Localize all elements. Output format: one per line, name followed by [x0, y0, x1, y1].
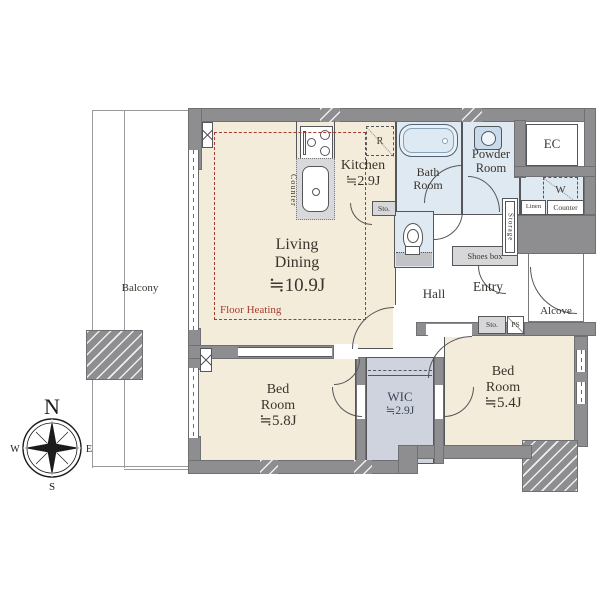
- wall-hatch-top1: [320, 108, 340, 122]
- kitchen-area: ≒2.9J: [330, 174, 396, 190]
- wic-hanger-dashed: [368, 370, 432, 371]
- kitchen-counter-label: Counter: [284, 160, 297, 220]
- wall-bottom-a: [188, 460, 416, 474]
- damper-box-left-mid: [200, 348, 212, 372]
- wic-hanger-pipe: [368, 375, 432, 376]
- ps-label: PS: [511, 321, 519, 329]
- bath-label: Bath Room: [396, 166, 460, 196]
- bed1-line2: Room: [222, 398, 334, 414]
- window-living-balcony: [188, 150, 199, 330]
- wic-name: WIC: [366, 390, 434, 405]
- storage-box-entry: Sto.: [478, 316, 506, 334]
- bed2-line2: Room: [447, 380, 559, 396]
- storage-label: Storage: [507, 213, 514, 241]
- toilet-seat: [407, 229, 419, 243]
- sto-entry-label: Sto.: [486, 321, 498, 329]
- powder-label: Powder Room: [459, 147, 523, 177]
- powder-line1: Powder: [459, 147, 523, 161]
- bathtub: [399, 124, 458, 157]
- kitchen-label: Kitchen ≒2.9J: [330, 158, 396, 190]
- bed1-area: ≒5.8J: [222, 413, 334, 430]
- bath-line2: Room: [396, 179, 460, 192]
- window-bed2-right-2: [576, 382, 586, 404]
- living-label: Living Dining ≒10.9J: [236, 236, 358, 300]
- damper-box-top-left: [202, 122, 213, 148]
- wall-hatch-top2: [462, 108, 482, 122]
- wall-bottom-step: [398, 445, 418, 474]
- alcove-label: Alcove: [529, 305, 583, 318]
- powder-sink-bowl: [481, 131, 496, 146]
- sliding-door-living-bed1: [238, 347, 332, 357]
- window-bed1-balcony: [188, 368, 199, 438]
- bathtub-drain: [442, 138, 448, 144]
- compass-west-label: W: [10, 444, 20, 455]
- wall-hatch-bottom1: [260, 460, 278, 474]
- balcony-label: Balcony: [100, 282, 180, 296]
- wic-label: WIC ≒2.9J: [366, 390, 434, 420]
- ec-label: EC: [526, 137, 578, 153]
- shoes-box-label: Shoes box: [467, 252, 502, 261]
- door-arc-toilet: [434, 211, 463, 240]
- wic-area: ≒2.9J: [366, 405, 434, 418]
- window-bed2-right-1: [576, 350, 586, 372]
- bed2-label: Bed Room ≒5.4J: [447, 364, 559, 416]
- pipe-space: PS: [507, 316, 524, 334]
- wall-top: [188, 108, 596, 122]
- linen-label: Linen: [526, 204, 541, 211]
- floor-heating-label: Floor Heating: [220, 304, 312, 318]
- balcony-bottom-line2: [124, 469, 196, 470]
- counter-right: Counter: [547, 200, 584, 215]
- balcony-bottom-line: [92, 466, 196, 467]
- powder-line2: Room: [459, 161, 523, 175]
- wall-alcove-bed2: [524, 322, 596, 336]
- wall-right-top: [584, 108, 596, 215]
- floor-plan: Counter R Sto. Shoes box Sto. PS Storage…: [0, 0, 600, 600]
- compass-south-label: S: [49, 481, 55, 493]
- linen-closet: Linen: [521, 200, 546, 215]
- wall-block-right: [516, 215, 596, 254]
- door-gap-wic-right: [435, 385, 443, 419]
- wall-hatch-bottom2: [354, 460, 372, 474]
- bed2-line1: Bed: [447, 364, 559, 380]
- living-area: ≒10.9J: [236, 275, 358, 296]
- living-line1: Living: [236, 236, 358, 254]
- toilet-tank: [405, 246, 420, 255]
- bath-line1: Bath: [396, 166, 460, 179]
- entry-label: Entry: [461, 279, 515, 294]
- compass-north-label: N: [44, 394, 60, 419]
- bed1-label: Bed Room ≒5.8J: [222, 382, 334, 434]
- wall-bottom-b: [398, 445, 532, 459]
- compass-rose: N W E S: [8, 394, 98, 494]
- bed2-area: ≒5.4J: [447, 395, 559, 412]
- wall-ec-bottom: [514, 166, 596, 177]
- storage-box-kitchen: Sto.: [372, 201, 396, 216]
- counter-right-label: Counter: [553, 204, 577, 212]
- balcony-partition: [86, 330, 143, 380]
- storage-closet: Storage: [502, 198, 518, 256]
- balcony-top-line: [92, 110, 196, 111]
- bed1-line1: Bed: [222, 382, 334, 398]
- living-line2: Dining: [236, 254, 358, 272]
- compass-east-label: E: [86, 444, 92, 455]
- hall-label: Hall: [407, 287, 461, 302]
- kitchen-name: Kitchen: [330, 158, 396, 174]
- sto-kitchen-label: Sto.: [378, 205, 390, 213]
